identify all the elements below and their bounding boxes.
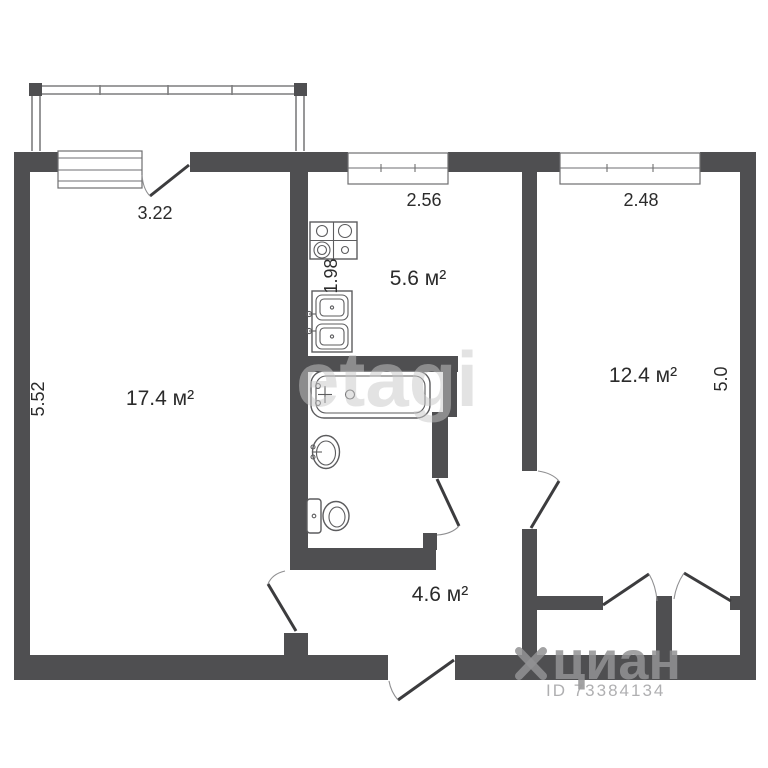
door-leaf	[603, 574, 649, 605]
toilet-icon	[307, 499, 349, 533]
floor-plan: 3.22 17.4 м² 5.52 2.56 5.6 м² 1.98 2.48 …	[0, 0, 768, 768]
watermark-brand-id: ID 73384134	[546, 681, 665, 700]
wall-bath-door-stub	[423, 533, 437, 550]
label-kitchen-width: 2.56	[406, 190, 441, 210]
door-leaf	[684, 573, 731, 601]
wall-top-segment	[700, 152, 756, 172]
door-leaf	[268, 584, 296, 631]
label-hall-area: 4.6 м²	[412, 583, 468, 606]
door-bathroom	[437, 479, 459, 535]
door-closet-right	[674, 573, 731, 601]
door-swing-arc	[268, 571, 285, 584]
wall-top-segment	[14, 152, 62, 172]
label-kitchen-area: 5.6 м²	[390, 267, 446, 290]
door-leaf	[531, 481, 559, 528]
stove-icon	[310, 222, 357, 259]
door-leaf	[398, 660, 454, 700]
wall-living-divider-stub	[284, 633, 308, 657]
balcony-post	[29, 83, 42, 96]
door-balcony	[142, 165, 189, 196]
wall-top-segment	[190, 152, 348, 172]
window-kitchen	[348, 153, 448, 184]
wall-bath-bottom	[290, 548, 436, 570]
balcony-post	[294, 83, 307, 96]
wall-bottom-left	[14, 655, 388, 680]
watermarks: etagi циан ID 73384134	[296, 335, 681, 700]
door-entrance	[389, 660, 454, 700]
wall-bedroom-divider-lower	[522, 529, 537, 657]
door-bedroom	[531, 471, 559, 528]
label-bedroom-area: 12.4 м²	[609, 364, 677, 387]
label-kitchen-height: 1.98	[321, 258, 341, 293]
label-bedroom-width: 2.48	[623, 190, 658, 210]
label-bedroom-height: 5.0	[711, 366, 731, 391]
wall-bedroom-divider-upper	[522, 172, 537, 471]
door-swing-arc	[142, 175, 150, 196]
label-balcony-door-width: 3.22	[137, 203, 172, 223]
label-living-area: 17.4 м²	[126, 387, 194, 410]
door-living	[268, 571, 296, 631]
window-living-balcony	[58, 151, 142, 188]
wall-closet-top	[537, 596, 603, 610]
door-leaf	[437, 479, 459, 526]
door-swing-arc	[437, 526, 459, 535]
wall-outer-right	[740, 152, 756, 680]
door-swing-arc	[538, 471, 559, 481]
window-bedroom	[560, 153, 700, 184]
wall-top-segment	[448, 152, 560, 172]
balcony	[29, 83, 307, 151]
door-swing-arc	[674, 573, 684, 599]
label-living-height: 5.52	[28, 381, 48, 416]
door-swing-arc	[389, 681, 398, 700]
windows	[58, 151, 700, 188]
door-leaf	[150, 165, 189, 196]
wall-closet-stub	[730, 596, 742, 610]
washbasin-icon	[311, 436, 340, 469]
watermark-etagi: etagi	[296, 335, 478, 423]
floor-plan-canvas: 3.22 17.4 м² 5.52 2.56 5.6 м² 1.98 2.48 …	[0, 0, 768, 768]
door-closet-left	[603, 574, 657, 605]
door-swing-arc	[649, 574, 657, 601]
